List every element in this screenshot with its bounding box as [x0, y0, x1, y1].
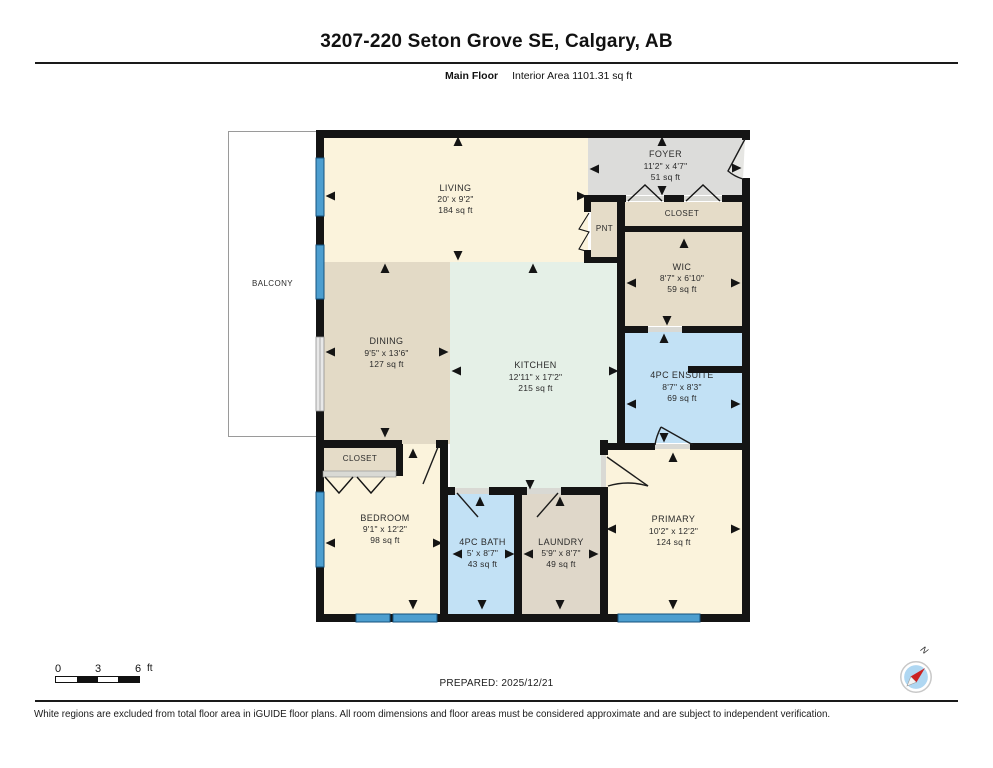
scale-unit-label: ft [147, 663, 153, 674]
scale-label-3: 3 [95, 663, 101, 675]
page-title: 3207-220 Seton Grove SE, Calgary, AB [0, 31, 993, 53]
room-primary: PRIMARY10'2" x 12'2"124 sq ft [604, 447, 743, 615]
floor-label: Main Floor [445, 70, 498, 82]
floor-subtitle: Main FloorInterior Area 1101.31 sq ft [445, 70, 632, 82]
room-balcony: BALCONY [228, 131, 317, 437]
floorplan-page: 3207-220 Seton Grove SE, Calgary, AB Mai… [0, 0, 993, 768]
room-living: LIVING20' x 9'2"184 sq ft [323, 137, 588, 262]
compass-icon [897, 658, 935, 696]
compass-north-label: N [919, 644, 930, 656]
room-ensuite: 4PC ENSUITE8'7" x 8'3"69 sq ft [621, 331, 743, 443]
room-closet-bottom: CLOSET [323, 448, 397, 471]
room-kitchen: KITCHEN12'11" x 17'2"215 sq ft [450, 262, 621, 492]
room-pantry: PNT [591, 202, 618, 257]
interior-area-label: Interior Area 1101.31 sq ft [512, 70, 632, 82]
disclaimer-text: White regions are excluded from total fl… [34, 709, 964, 720]
footer-divider [35, 700, 958, 702]
room-label: BALCONY [252, 279, 293, 289]
scale-label-6: 6 [135, 663, 141, 675]
room-foyer: FOYER11'2" x 4'7"51 sq ft [588, 137, 743, 195]
scale-label-0: 0 [55, 663, 61, 675]
room-dining: DINING9'5" x 13'6"127 sq ft [323, 262, 450, 444]
room-bath: 4PC BATH5' x 8'7"43 sq ft [447, 492, 518, 615]
room-wic: WIC8'7" x 6'10"59 sq ft [621, 231, 743, 326]
prepared-date: PREPARED: 2025/12/21 [0, 678, 993, 689]
header-divider [35, 62, 958, 64]
room-laundry: LAUNDRY5'9" x 8'7"49 sq ft [518, 492, 604, 615]
room-closet-top: CLOSET [621, 202, 743, 226]
